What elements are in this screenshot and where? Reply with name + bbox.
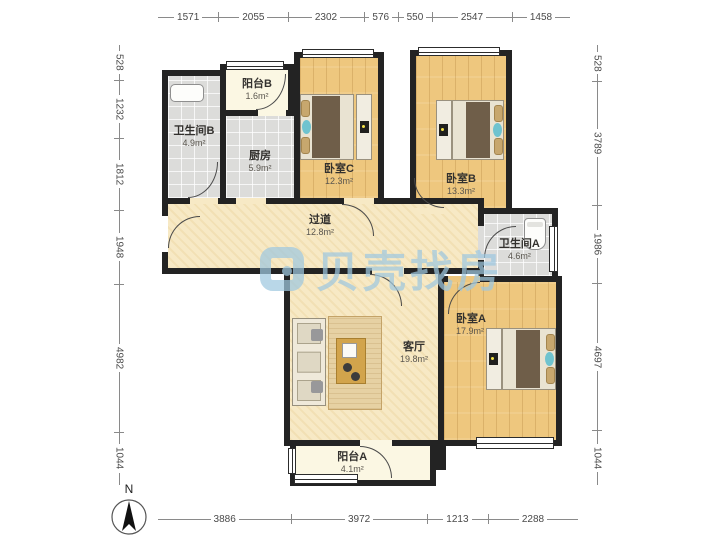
room-name: 过道 <box>306 213 334 227</box>
window <box>549 226 558 272</box>
door-opening-balcony-a <box>360 440 392 446</box>
dim-value: 4697 <box>592 343 603 371</box>
door-opening-bedroom-a <box>448 276 480 282</box>
toilet-icon <box>524 218 546 250</box>
room-label: 卧室B 13.3m² <box>446 172 476 198</box>
dim-segment: 528 <box>112 45 126 80</box>
dim-segment: 4982 <box>112 284 126 431</box>
dimension-strip-top: 1571 2055 2302 576 550 2547 1458 <box>158 10 570 24</box>
room-area: 17.9m² <box>456 326 486 338</box>
dim-value: 3789 <box>592 129 603 157</box>
dim-segment: 1044 <box>590 430 604 485</box>
door-opening-bathroom-b <box>190 198 218 204</box>
window <box>226 61 284 70</box>
dim-segment: 1571 <box>158 10 218 24</box>
dim-value: 2302 <box>312 12 340 23</box>
room-name: 卧室A <box>456 312 486 326</box>
bed-icon <box>486 328 556 390</box>
room-area: 12.3m² <box>324 176 354 188</box>
room-name: 客厅 <box>400 340 428 354</box>
door-opening-kitchen <box>236 198 266 204</box>
dim-value: 4982 <box>114 344 125 372</box>
room-name: 卫生间B <box>174 124 215 138</box>
dim-value: 1948 <box>114 233 125 261</box>
door-opening-bedroom-c <box>344 198 374 204</box>
room-area: 12.8m² <box>306 227 334 239</box>
teapot-icon <box>343 363 352 372</box>
dim-segment: 1948 <box>112 210 126 285</box>
dim-value: 528 <box>592 52 603 75</box>
dim-segment: 2547 <box>432 10 512 24</box>
sofa-icon <box>292 318 326 406</box>
dim-segment: 576 <box>364 10 398 24</box>
music-box-icon <box>342 343 357 358</box>
dim-segment: 2302 <box>288 10 363 24</box>
dim-segment: 1232 <box>112 80 126 138</box>
dim-segment: 1812 <box>112 138 126 210</box>
floorplan-canvas: 1571 2055 2302 576 550 2547 1458 3886 39… <box>0 0 720 540</box>
dim-segment: 3886 <box>158 512 291 526</box>
teacup-icon <box>351 372 360 381</box>
dim-value: 3886 <box>211 514 239 525</box>
window <box>476 437 554 449</box>
door-opening-living <box>372 268 404 274</box>
dimension-strip-bottom: 3886 3972 1213 2288 <box>158 512 578 526</box>
dimension-strip-left: 528 1232 1812 1948 4982 1044 <box>112 45 126 485</box>
room-label: 过道 12.8m² <box>306 213 334 239</box>
dim-segment: 3789 <box>590 81 604 205</box>
room-label: 卧室A 17.9m² <box>456 312 486 338</box>
room-name: 厨房 <box>248 149 271 163</box>
dim-value: 1044 <box>592 444 603 472</box>
dim-segment: 550 <box>398 10 432 24</box>
dim-segment: 1458 <box>512 10 570 24</box>
dim-segment: 4697 <box>590 283 604 430</box>
dim-value: 2288 <box>519 514 547 525</box>
dim-value: 1571 <box>174 12 202 23</box>
dim-value: 2055 <box>239 12 267 23</box>
dim-segment: 528 <box>590 45 604 81</box>
dim-segment: 2055 <box>218 10 288 24</box>
coffee-table-icon <box>336 338 366 384</box>
window <box>418 47 500 56</box>
room-area: 19.8m² <box>400 354 428 366</box>
dim-segment: 2288 <box>488 512 578 526</box>
room-label: 卫生间B 4.9m² <box>174 124 215 150</box>
sink-icon <box>170 84 204 102</box>
door-opening-bedroom-b <box>414 208 444 214</box>
room-name: 卧室C <box>324 162 354 176</box>
room-label: 厨房 5.9m² <box>248 149 271 175</box>
room-label: 卧室C 12.3m² <box>324 162 354 188</box>
dimension-strip-right: 528 3789 1986 4697 1044 <box>590 45 604 485</box>
window <box>294 474 358 484</box>
window <box>288 448 296 474</box>
dim-value: 1232 <box>114 95 125 123</box>
window <box>302 49 374 58</box>
bed-icon <box>436 100 504 160</box>
dim-value: 1044 <box>114 444 125 472</box>
dim-segment: 1986 <box>590 205 604 283</box>
room-area: 5.9m² <box>248 163 271 175</box>
dim-value: 576 <box>369 12 392 23</box>
compass-north-label: N <box>125 482 134 496</box>
door-opening-balcony-b <box>258 110 286 116</box>
room-label: 客厅 19.8m² <box>400 340 428 366</box>
compass-icon: N <box>100 481 158 539</box>
room-area: 4.9m² <box>174 138 215 150</box>
dim-segment: 3972 <box>291 512 427 526</box>
dim-value: 2547 <box>458 12 486 23</box>
room-kitchen: 厨房 5.9m² <box>220 110 300 204</box>
dim-value: 3972 <box>345 514 373 525</box>
dim-segment: 1044 <box>112 432 126 485</box>
dim-value: 550 <box>404 12 427 23</box>
wall-stub <box>430 440 446 470</box>
dim-value: 1812 <box>114 160 125 188</box>
room-name: 卧室B <box>446 172 476 186</box>
dim-value: 528 <box>114 51 125 74</box>
dim-segment: 1213 <box>427 512 488 526</box>
dim-value: 1458 <box>527 12 555 23</box>
bed-icon <box>300 94 372 160</box>
dim-value: 1986 <box>592 230 603 258</box>
room-area: 13.3m² <box>446 186 476 198</box>
dim-value: 1213 <box>443 514 471 525</box>
